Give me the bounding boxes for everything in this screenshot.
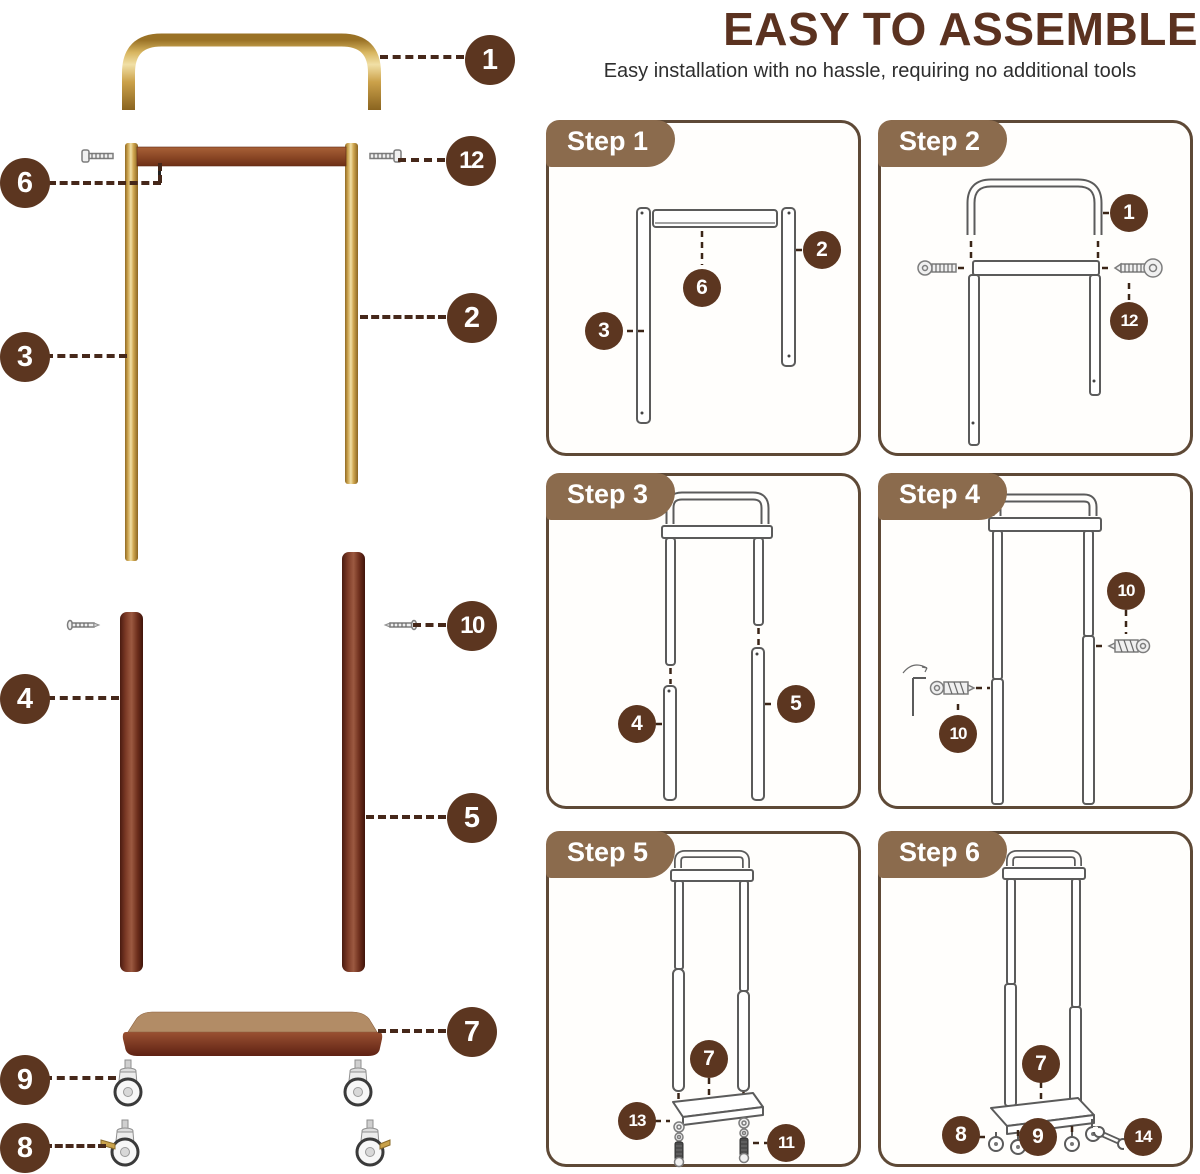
base-plate-part	[123, 1012, 382, 1056]
connector-part-1	[380, 55, 464, 59]
step-badge: Step 4	[878, 473, 1007, 520]
callout-14: 14	[1124, 1118, 1162, 1156]
assembly-infographic: EASY TO ASSEMBLE Easy installation with …	[0, 0, 1200, 1174]
callout-8: 8	[942, 1116, 980, 1154]
callout-10: 10	[447, 601, 497, 651]
callout-4: 4	[618, 705, 656, 743]
callout-11: 11	[767, 1124, 805, 1162]
connector-part-4	[47, 696, 119, 700]
callout-4: 4	[0, 674, 50, 724]
caster-icon	[989, 1132, 1003, 1151]
wood-crossbar-part	[137, 147, 346, 175]
connector-part-3	[45, 354, 127, 358]
screw-icon	[931, 682, 975, 695]
step-2-diagram	[881, 123, 1196, 459]
connector-part-7	[378, 1029, 446, 1033]
callout-3: 3	[585, 312, 623, 350]
step-panel-3: Step 3 4 5	[546, 473, 861, 809]
screw-icon	[385, 621, 417, 630]
locking-caster-icon	[101, 1120, 138, 1165]
step-badge: Step 2	[878, 120, 1007, 167]
callout-9: 9	[1019, 1118, 1057, 1156]
step-panel-2: Step 2 1 12	[878, 120, 1193, 456]
connector-part-8	[44, 1144, 106, 1148]
handle-part	[129, 40, 375, 110]
callout-1: 1	[465, 35, 515, 85]
connector-part-5	[366, 815, 446, 819]
callout-2: 2	[447, 293, 497, 343]
callout-10: 10	[939, 715, 977, 753]
callout-12: 12	[446, 136, 496, 186]
step-panel-5: Step 5 7 13 11	[546, 831, 861, 1167]
callout-7: 7	[690, 1040, 728, 1078]
step-badge: Step 5	[546, 831, 675, 878]
step-panel-4: Step 4 10 10	[878, 473, 1193, 809]
bolt-icon	[739, 1118, 749, 1163]
screw-icon	[370, 150, 401, 162]
allen-key-icon	[903, 665, 927, 716]
frame-part	[125, 143, 358, 561]
screw-icon	[82, 150, 113, 162]
callout-7: 7	[1022, 1045, 1060, 1083]
callout-13: 13	[618, 1102, 656, 1140]
caster-icon	[1065, 1132, 1079, 1151]
callout-10: 10	[1107, 572, 1145, 610]
caster-icon	[115, 1060, 141, 1105]
screw-icon	[918, 261, 956, 275]
connector-part-12	[398, 158, 445, 162]
callout-5: 5	[777, 685, 815, 723]
callout-2: 2	[803, 231, 841, 269]
step-3-diagram	[549, 476, 864, 812]
connector-part-10	[413, 623, 446, 627]
bolt-icon	[674, 1122, 684, 1167]
connector-part-9	[44, 1076, 116, 1080]
step-badge: Step 6	[878, 831, 1007, 878]
step-5-diagram	[549, 834, 864, 1170]
page-title: EASY TO ASSEMBLE	[543, 2, 1198, 56]
step-badge: Step 1	[546, 120, 675, 167]
wood-pole-part	[120, 552, 365, 972]
screw-icon	[68, 621, 100, 630]
page-subtitle: Easy installation with no hassle, requir…	[540, 60, 1200, 83]
screw-icon	[1109, 640, 1150, 653]
step-panel-6: Step 6 7 8 9 14	[878, 831, 1193, 1167]
locking-caster-icon	[357, 1120, 390, 1165]
step-4-diagram	[881, 476, 1196, 812]
callout-6: 6	[0, 158, 50, 208]
callout-12: 12	[1110, 302, 1148, 340]
callout-5: 5	[447, 793, 497, 843]
connector-part-6	[158, 163, 162, 183]
step-badge: Step 3	[546, 473, 675, 520]
callout-6: 6	[683, 269, 721, 307]
callout-3: 3	[0, 332, 50, 382]
screw-icon	[1115, 259, 1162, 277]
callout-7: 7	[447, 1007, 497, 1057]
callout-9: 9	[0, 1055, 50, 1105]
connector-part-2	[360, 315, 446, 319]
caster-icon	[345, 1060, 371, 1105]
step-panel-1: Step 1 6 3 2	[546, 120, 861, 456]
connector-part-6	[48, 181, 161, 185]
callout-1: 1	[1110, 194, 1148, 232]
callout-8: 8	[0, 1123, 50, 1173]
